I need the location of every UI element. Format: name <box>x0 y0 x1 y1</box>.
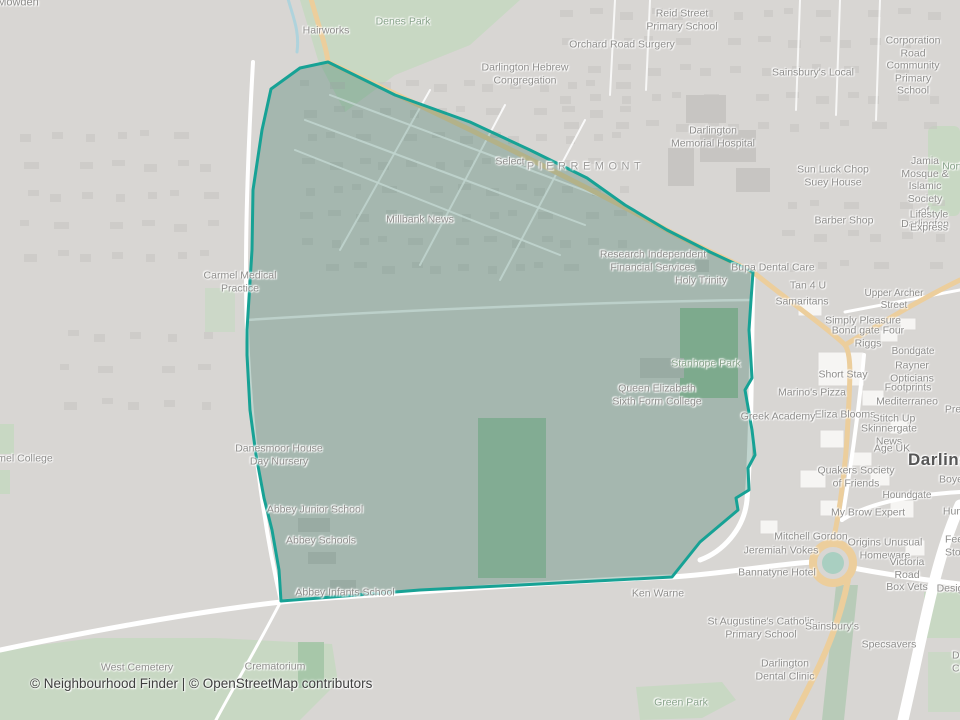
roundabout-green <box>822 552 844 574</box>
attribution: © Neighbourhood Finder | © OpenStreetMap… <box>30 676 372 691</box>
basemap <box>0 0 960 720</box>
green-park-area <box>636 682 736 720</box>
short-stay-car-park <box>818 352 864 386</box>
neighbourhood-boundary-polygon <box>247 62 755 601</box>
map-canvas[interactable]: MowdenHairworksDenes ParkReid Street Pri… <box>0 0 960 720</box>
stream <box>287 0 298 52</box>
